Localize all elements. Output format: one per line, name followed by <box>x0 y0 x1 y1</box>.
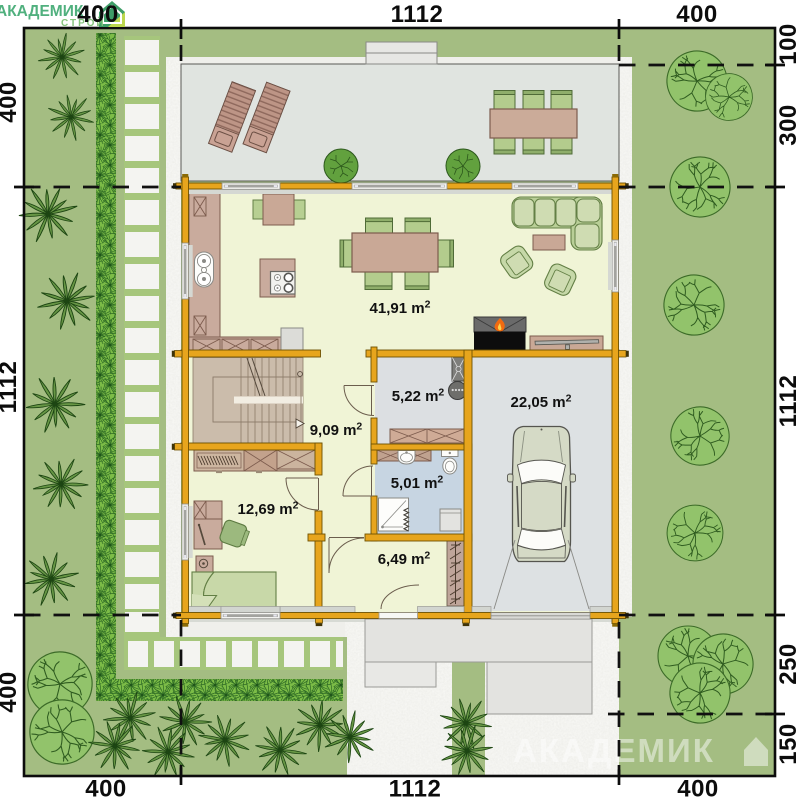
svg-text:250: 250 <box>775 643 799 685</box>
svg-text:100: 100 <box>775 23 799 65</box>
svg-text:1112: 1112 <box>391 1 444 28</box>
svg-text:1112: 1112 <box>0 361 22 414</box>
svg-text:400: 400 <box>0 671 22 713</box>
svg-text:5,01 m2: 5,01 m2 <box>391 474 444 493</box>
svg-text:400: 400 <box>85 776 127 800</box>
svg-text:400: 400 <box>77 1 119 28</box>
svg-text:41,91 m2: 41,91 m2 <box>370 299 431 318</box>
svg-text:АКАДЕМИК: АКАДЕМИК <box>513 732 715 769</box>
svg-text:300: 300 <box>775 104 799 146</box>
svg-text:1112: 1112 <box>389 776 442 800</box>
svg-text:400: 400 <box>0 81 22 123</box>
svg-text:400: 400 <box>676 1 718 28</box>
svg-text:400: 400 <box>677 776 719 800</box>
svg-text:5,22 m2: 5,22 m2 <box>392 387 445 406</box>
svg-text:12,69 m2: 12,69 m2 <box>238 500 299 519</box>
svg-text:6,49 m2: 6,49 m2 <box>378 550 431 569</box>
svg-text:1112: 1112 <box>775 375 799 428</box>
svg-text:150: 150 <box>775 723 799 765</box>
svg-text:9,09 m2: 9,09 m2 <box>310 421 363 440</box>
svg-text:22,05 m2: 22,05 m2 <box>511 393 572 412</box>
